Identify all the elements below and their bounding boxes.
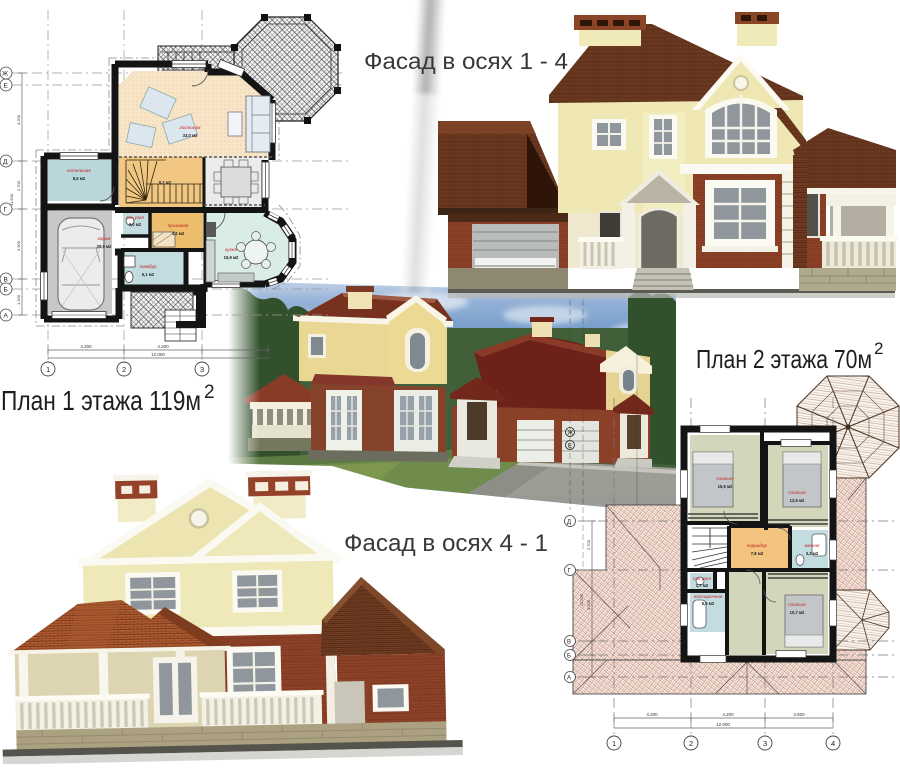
svg-text:А: А <box>567 676 571 682</box>
svg-text:Ж: Ж <box>568 431 574 437</box>
svg-text:1.200: 1.200 <box>16 294 21 305</box>
svg-text:постирочная: постирочная <box>694 594 723 599</box>
svg-text:7,8 м2: 7,8 м2 <box>751 551 764 556</box>
svg-text:3,0 м2: 3,0 м2 <box>129 222 142 227</box>
svg-text:4.200: 4.200 <box>80 344 92 349</box>
svg-text:Фасад в осях 1 - 4: Фасад в осях 1 - 4 <box>364 48 568 74</box>
svg-text:12.000: 12.000 <box>151 352 165 357</box>
svg-text:8,5 м2: 8,5 м2 <box>73 176 86 181</box>
svg-text:В: В <box>567 640 571 646</box>
svg-text:10,7 м2: 10,7 м2 <box>790 610 805 615</box>
svg-text:1: 1 <box>612 739 616 748</box>
svg-text:13,6 м2: 13,6 м2 <box>790 498 805 503</box>
svg-text:кухня: кухня <box>225 247 237 252</box>
svg-text:15,9 м2: 15,9 м2 <box>224 255 239 260</box>
svg-text:3.600: 3.600 <box>793 712 805 717</box>
svg-text:Фасад в осях 4 - 1: Фасад в осях 4 - 1 <box>344 530 548 557</box>
svg-text:4,4 м2: 4,4 м2 <box>172 231 185 236</box>
svg-text:2: 2 <box>204 382 215 403</box>
svg-text:13.500: 13.500 <box>579 593 584 606</box>
svg-text:4: 4 <box>831 739 835 748</box>
svg-text:Д: Д <box>567 520 571 526</box>
svg-text:3: 3 <box>763 739 767 748</box>
svg-text:котельная: котельная <box>67 168 91 173</box>
svg-text:9,2 м2: 9,2 м2 <box>159 180 172 185</box>
svg-text:4.200: 4.200 <box>722 712 734 717</box>
svg-text:3.900: 3.900 <box>586 599 591 610</box>
svg-text:29,9 м2: 29,9 м2 <box>97 244 112 249</box>
svg-text:ванная: ванная <box>805 543 820 548</box>
svg-text:спальня: спальня <box>788 490 806 495</box>
svg-text:15,5 м2: 15,5 м2 <box>718 484 733 489</box>
svg-text:сан узел: сан узел <box>126 215 144 220</box>
svg-text:33,0 м2: 33,0 м2 <box>183 133 198 138</box>
svg-text:4.200: 4.200 <box>16 114 21 125</box>
svg-text:1: 1 <box>46 365 50 374</box>
svg-text:4.200: 4.200 <box>157 344 169 349</box>
svg-text:3,3 м2: 3,3 м2 <box>806 551 819 556</box>
svg-text:12.000: 12.000 <box>716 722 730 727</box>
svg-text:Г: Г <box>4 207 8 214</box>
svg-text:2: 2 <box>874 339 883 358</box>
svg-text:гараж: гараж <box>97 236 111 241</box>
svg-text:Б: Б <box>567 654 571 660</box>
svg-text:План 1 этажа 119м: План 1 этажа 119м <box>1 385 201 416</box>
svg-text:1,7 м2: 1,7 м2 <box>696 583 709 588</box>
svg-text:сан узел: сан узел <box>693 576 711 581</box>
svg-text:прихожая: прихожая <box>168 223 189 228</box>
svg-text:корридор: корридор <box>747 543 767 548</box>
svg-text:2: 2 <box>689 739 693 748</box>
svg-text:Б: Б <box>4 287 8 294</box>
svg-text:тамбур: тамбур <box>140 264 157 269</box>
svg-text:Д: Д <box>3 159 8 166</box>
svg-text:5,1 м2: 5,1 м2 <box>142 272 155 277</box>
svg-text:5,6 м2: 5,6 м2 <box>702 601 715 606</box>
svg-text:спальня: спальня <box>716 476 734 481</box>
svg-text:В: В <box>4 277 8 284</box>
svg-text:Е: Е <box>4 83 9 90</box>
svg-text:3: 3 <box>200 365 204 374</box>
svg-text:2: 2 <box>122 365 126 374</box>
svg-text:2.700: 2.700 <box>16 180 21 191</box>
svg-text:Ж: Ж <box>2 71 8 78</box>
svg-text:3.900: 3.900 <box>16 240 21 251</box>
svg-text:2.700: 2.700 <box>586 539 591 550</box>
svg-text:4.200: 4.200 <box>646 712 658 717</box>
svg-text:А: А <box>4 313 9 320</box>
svg-text:гостиная: гостиная <box>180 125 202 130</box>
svg-text:спальня: спальня <box>788 602 806 607</box>
svg-text:План 2 этажа 70м: План 2 этажа 70м <box>696 344 872 374</box>
